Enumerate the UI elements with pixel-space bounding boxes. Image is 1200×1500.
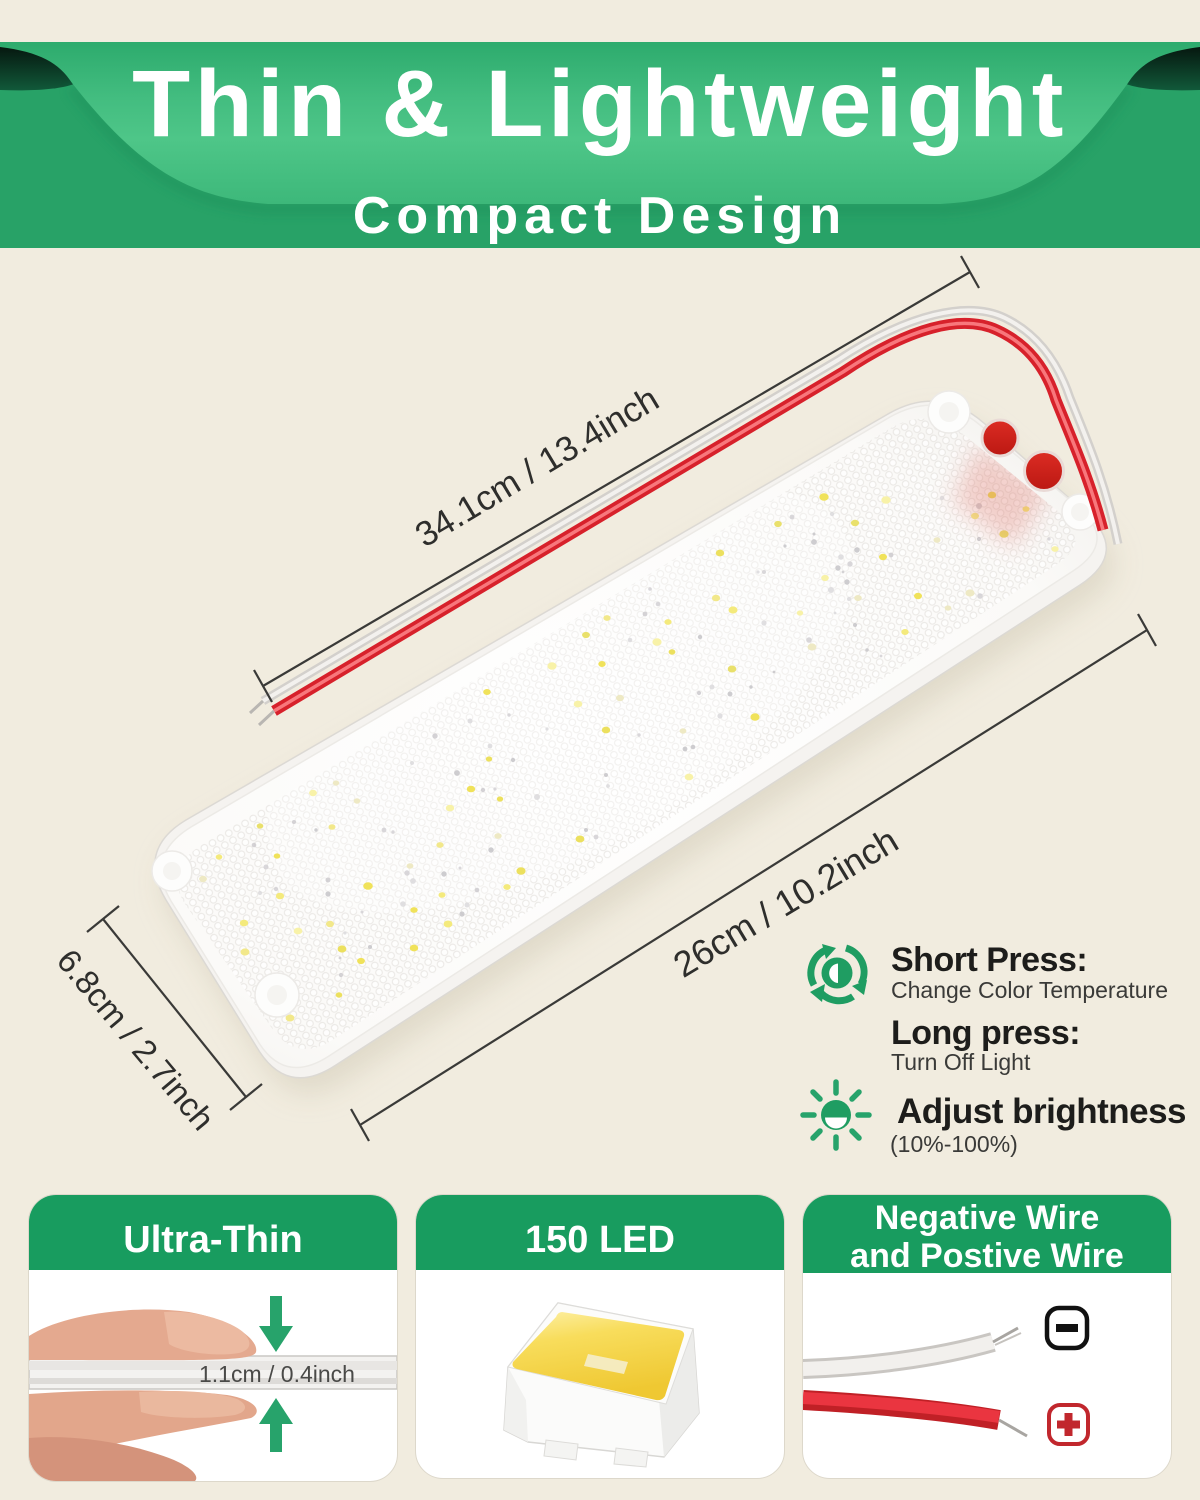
svg-text:1.1cm / 0.4inch: 1.1cm / 0.4inch bbox=[199, 1361, 355, 1387]
svg-text:6.8cm / 2.7inch: 6.8cm / 2.7inch bbox=[50, 942, 222, 1137]
svg-text:34.1cm / 13.4inch: 34.1cm / 13.4inch bbox=[409, 379, 666, 555]
svg-text:Thin & Lightweight: Thin & Lightweight bbox=[132, 51, 1068, 157]
svg-text:Compact Design: Compact Design bbox=[353, 187, 847, 245]
